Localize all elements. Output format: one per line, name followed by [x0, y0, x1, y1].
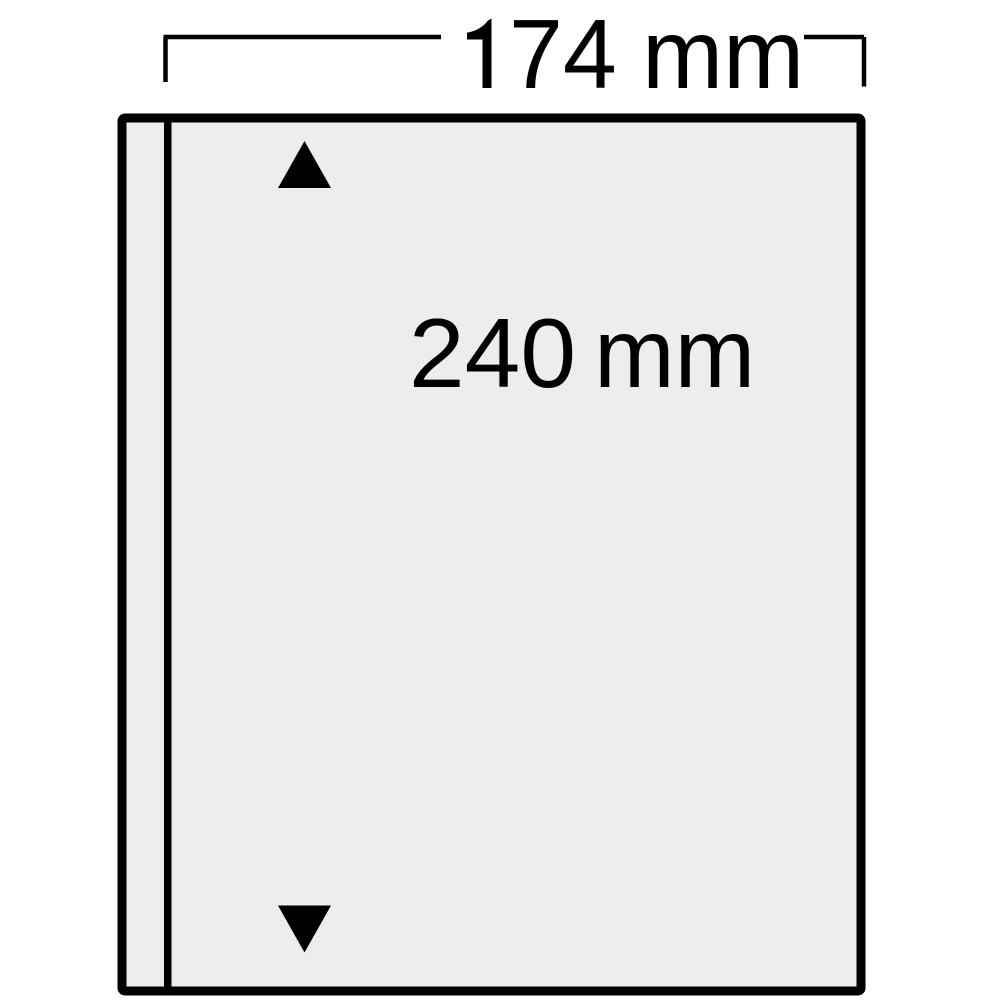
svg-text:mm: mm: [642, 0, 804, 109]
svg-text:74: 74: [509, 0, 617, 109]
svg-text:240: 240: [409, 298, 576, 408]
svg-text:mm: mm: [594, 298, 755, 408]
